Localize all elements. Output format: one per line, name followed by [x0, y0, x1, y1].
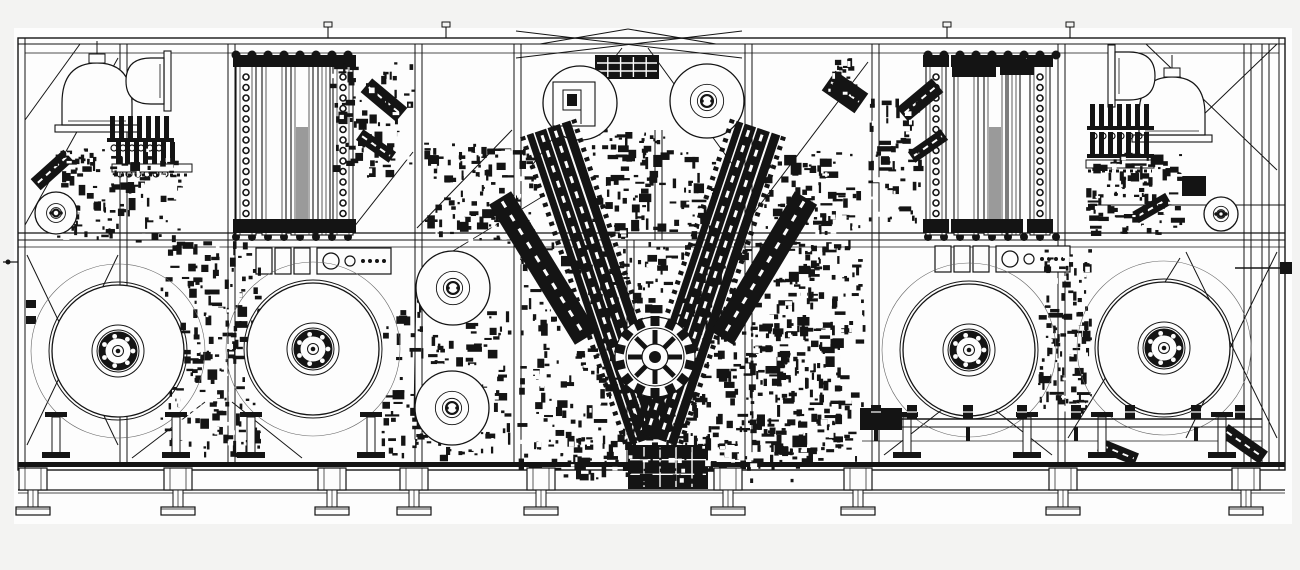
roll: [35, 192, 77, 234]
drawing-canvas: [0, 0, 1300, 570]
machine-assembly-drawing: [0, 0, 1300, 570]
roll: [670, 64, 744, 138]
roll: [416, 251, 490, 325]
roll: [415, 371, 489, 445]
indexing-turret: [614, 316, 696, 398]
roll: [1204, 197, 1238, 231]
